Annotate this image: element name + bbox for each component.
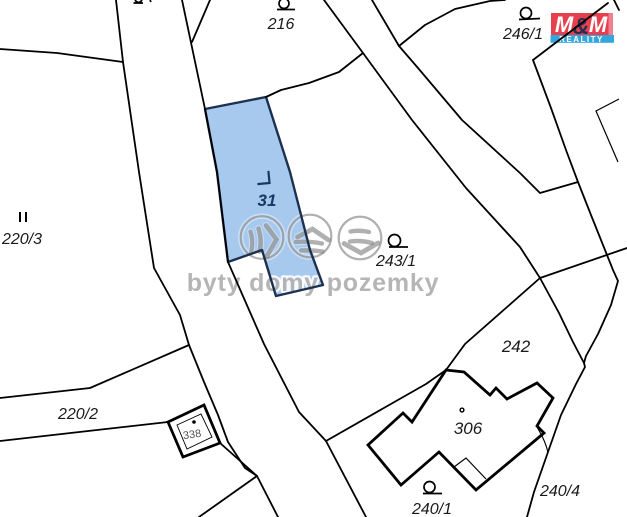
svg-text:31: 31 — [258, 191, 277, 210]
svg-text:M: M — [555, 12, 574, 37]
svg-text:220/2: 220/2 — [57, 406, 98, 423]
svg-text:306: 306 — [454, 419, 483, 438]
svg-text:240/4: 240/4 — [539, 483, 580, 500]
svg-text:243/1: 243/1 — [375, 253, 416, 270]
svg-text:220/3: 220/3 — [1, 231, 42, 248]
svg-text:240/1: 240/1 — [411, 501, 452, 517]
svg-text:REALITY: REALITY — [559, 35, 604, 44]
svg-text:246/1: 246/1 — [502, 26, 543, 43]
svg-text:338: 338 — [182, 428, 202, 442]
svg-text:242: 242 — [501, 337, 531, 356]
svg-text:216: 216 — [267, 16, 295, 33]
svg-text:byty domy pozemky: byty domy pozemky — [187, 269, 440, 297]
